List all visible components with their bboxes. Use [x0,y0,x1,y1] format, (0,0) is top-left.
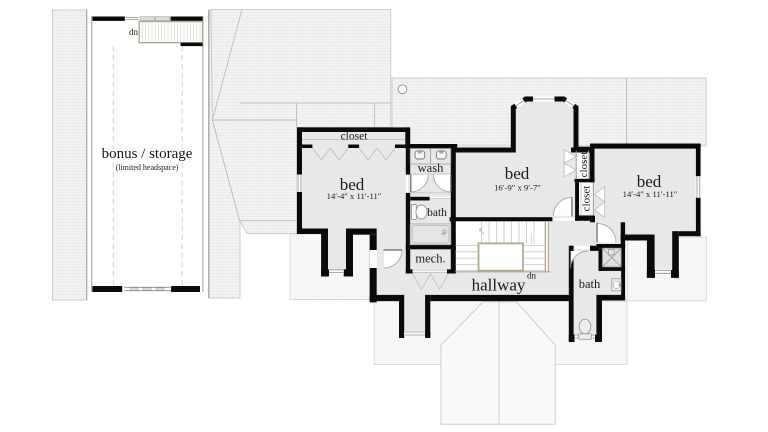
svg-text:bath: bath [427,207,447,219]
svg-text:bath: bath [579,277,601,291]
svg-text:wash: wash [418,161,444,175]
svg-text:closet: closet [341,131,369,143]
svg-text:dn: dn [129,27,139,37]
svg-text:closet: closet [578,152,590,178]
svg-text:bonus / storage: bonus / storage [102,146,193,162]
svg-text:14′-4″ x 11′-11″: 14′-4″ x 11′-11″ [623,189,678,199]
svg-text:mech.: mech. [415,252,445,266]
svg-text:dn: dn [527,271,537,281]
svg-text:closet: closet [581,186,593,212]
svg-text:bed: bed [505,164,530,183]
svg-text:(limited headspace): (limited headspace) [116,163,179,172]
svg-text:14′-4″ x 11′-11″: 14′-4″ x 11′-11″ [327,191,382,201]
svg-text:hallway: hallway [472,276,526,295]
svg-text:16′-9″ x 9′-7″: 16′-9″ x 9′-7″ [494,183,541,193]
